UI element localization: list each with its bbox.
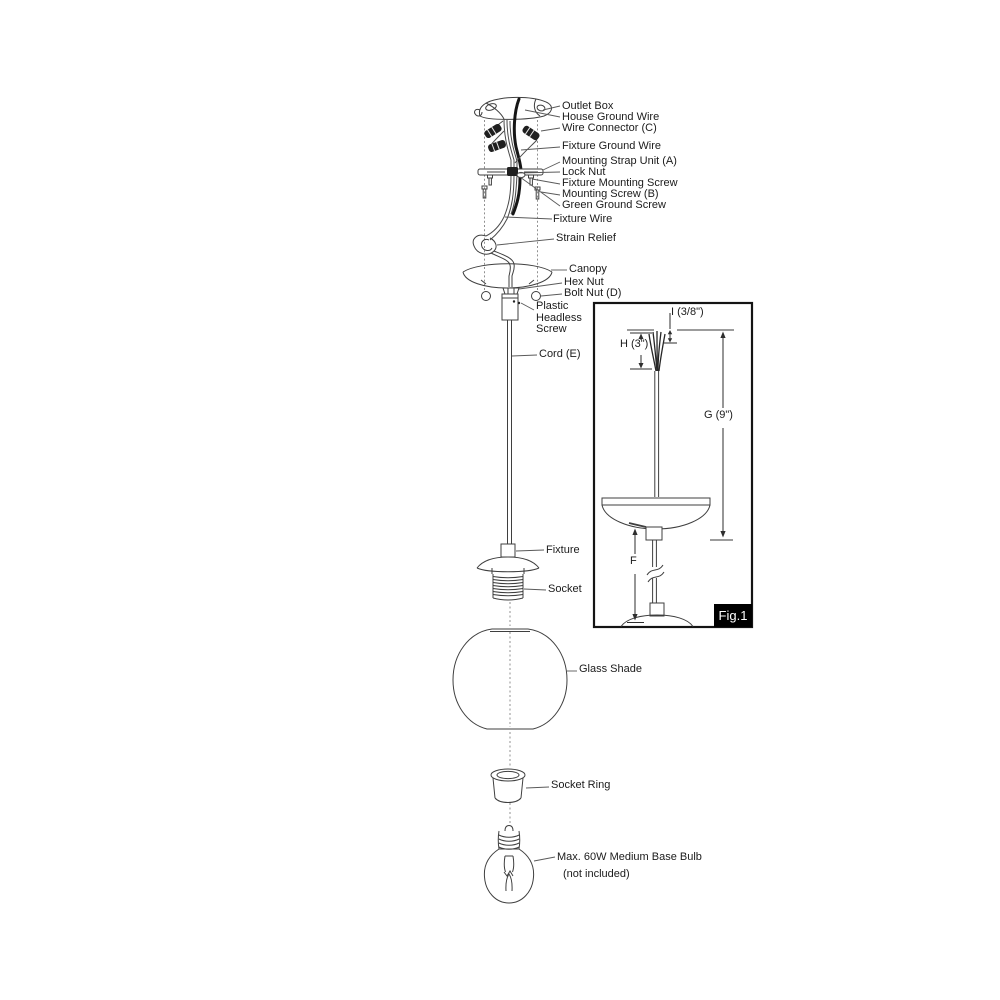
fixture-wires-drawing xyxy=(486,119,537,240)
label-fixture-wire: Fixture Wire xyxy=(553,214,612,226)
label-canopy: Canopy xyxy=(569,264,607,276)
label-glass-shade: Glass Shade xyxy=(579,664,642,676)
label-green-ground-screw: Green Ground Screw xyxy=(562,200,666,212)
label-dimension-h: H (3") xyxy=(620,339,648,351)
socket-drawing xyxy=(492,568,524,600)
inset-border xyxy=(594,303,752,627)
label-fixture-ground-wire: Fixture Ground Wire xyxy=(562,141,661,153)
inset-figure xyxy=(594,303,752,627)
label-bulb-not-included: (not included) xyxy=(563,869,630,881)
house-ground-wire-drawing xyxy=(513,99,521,214)
label-bolt-nut-d: Bolt Nut (D) xyxy=(564,288,621,300)
socket-ring-drawing xyxy=(491,769,525,803)
wire-connector-icons xyxy=(483,123,540,153)
label-dimension-f: F xyxy=(630,556,637,568)
label-dimension-g: G (9") xyxy=(704,410,733,422)
outlet-box-drawing xyxy=(475,97,552,119)
mounting-screw-icons xyxy=(482,186,540,199)
label-strain-relief: Strain Relief xyxy=(556,233,616,245)
pendant-light-diagram: Outlet Box House Ground Wire Wire Connec… xyxy=(0,0,1000,1000)
label-bulb-max-wattage: Max. 60W Medium Base Bulb xyxy=(557,852,702,864)
label-socket: Socket xyxy=(548,584,582,596)
figure-1-badge: Fig.1 xyxy=(714,604,752,627)
label-plastic-headless-screw: Plastic Headless Screw xyxy=(536,301,582,336)
stem-drawing xyxy=(502,294,520,320)
hex-nut-drawing xyxy=(503,288,519,294)
label-cord-e: Cord (E) xyxy=(539,349,581,361)
line-art xyxy=(0,0,1000,1000)
strain-relief-drawing xyxy=(473,235,514,287)
cord-drawing xyxy=(508,320,512,544)
label-socket-ring: Socket Ring xyxy=(551,780,610,792)
fixture-drawing xyxy=(477,544,539,572)
label-wire-connector-c: Wire Connector (C) xyxy=(562,123,657,135)
label-dimension-i: I (3/8") xyxy=(671,307,704,319)
canopy-drawing xyxy=(463,264,552,288)
label-fixture: Fixture xyxy=(546,545,580,557)
bulb-drawing xyxy=(484,826,533,904)
